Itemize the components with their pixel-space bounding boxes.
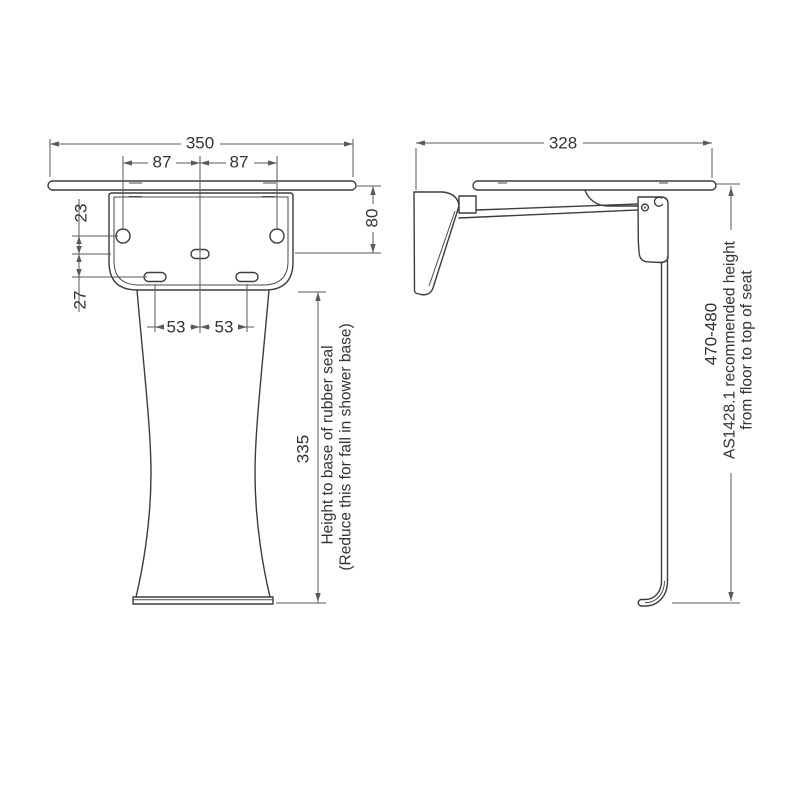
dim-plate-to-holes-label: 23 (72, 204, 91, 223)
leg-foot-outer (642, 581, 668, 606)
leg-tube (662, 257, 668, 581)
dim-recommended-height: 470-480 AS1428.1 recommended height from… (672, 184, 756, 603)
dim-height-to-seal-label: 335 (294, 435, 313, 463)
mounting-bracket-outer (109, 193, 293, 290)
front-view (48, 156, 356, 604)
dim-slot-right-label: 53 (215, 318, 234, 337)
dim-fixing-right-label: 87 (230, 153, 249, 172)
seat-plate-side (473, 181, 716, 190)
dim-bracket-height: 80 (295, 186, 382, 253)
wall-bracket (414, 192, 459, 295)
dim-fixing-left-label: 87 (153, 153, 172, 172)
dim-overall-depth-label: 328 (549, 134, 577, 153)
hinge-bracket (638, 197, 668, 263)
dim-recommended-height-label: 470-480 (702, 303, 721, 365)
pedestal-base-seal (133, 597, 273, 604)
leg-foot-cap (638, 600, 641, 607)
dim-overall-width-label: 350 (186, 134, 214, 153)
drawing-canvas: 350 87 87 23 27 80 53 53 335 (0, 0, 800, 800)
dim-height-to-seal: 335 Height to base of rubber seal (Reduc… (276, 292, 355, 603)
front-note-line1: Height to base of rubber seal (320, 345, 337, 544)
dim-slot-left-label: 53 (167, 318, 186, 337)
front-note-line2: (Reduce this for fall in shower base) (338, 323, 355, 570)
pedestal-right-edge (255, 290, 270, 597)
pivot-screw-center (644, 206, 646, 208)
seat-plate-front (48, 181, 356, 190)
pedestal-left-edge (136, 290, 151, 597)
dim-bracket-height-label: 80 (363, 209, 382, 228)
side-view (414, 181, 716, 606)
side-note-line1: AS1428.1 recommended height (722, 240, 739, 459)
arm-mount-slot (459, 196, 476, 213)
dim-overall-width: 350 (50, 134, 353, 178)
side-note-line2: from floor to top of seat (739, 270, 756, 430)
dim-holes-to-slots-label: 27 (71, 291, 90, 310)
technical-drawing: 350 87 87 23 27 80 53 53 335 (0, 0, 800, 800)
